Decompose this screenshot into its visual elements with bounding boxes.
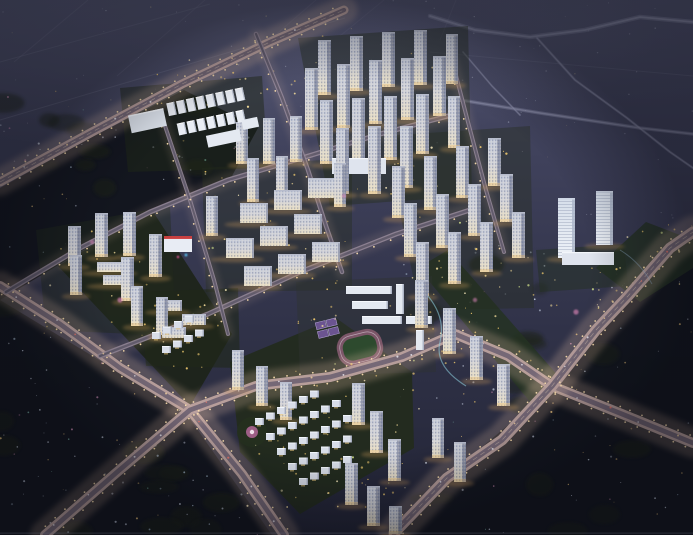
vignette: [0, 0, 693, 535]
aerial-rendering-canvas: [0, 0, 693, 535]
vignette-layer: [0, 0, 693, 535]
aerial-city-rendering: [0, 0, 693, 535]
